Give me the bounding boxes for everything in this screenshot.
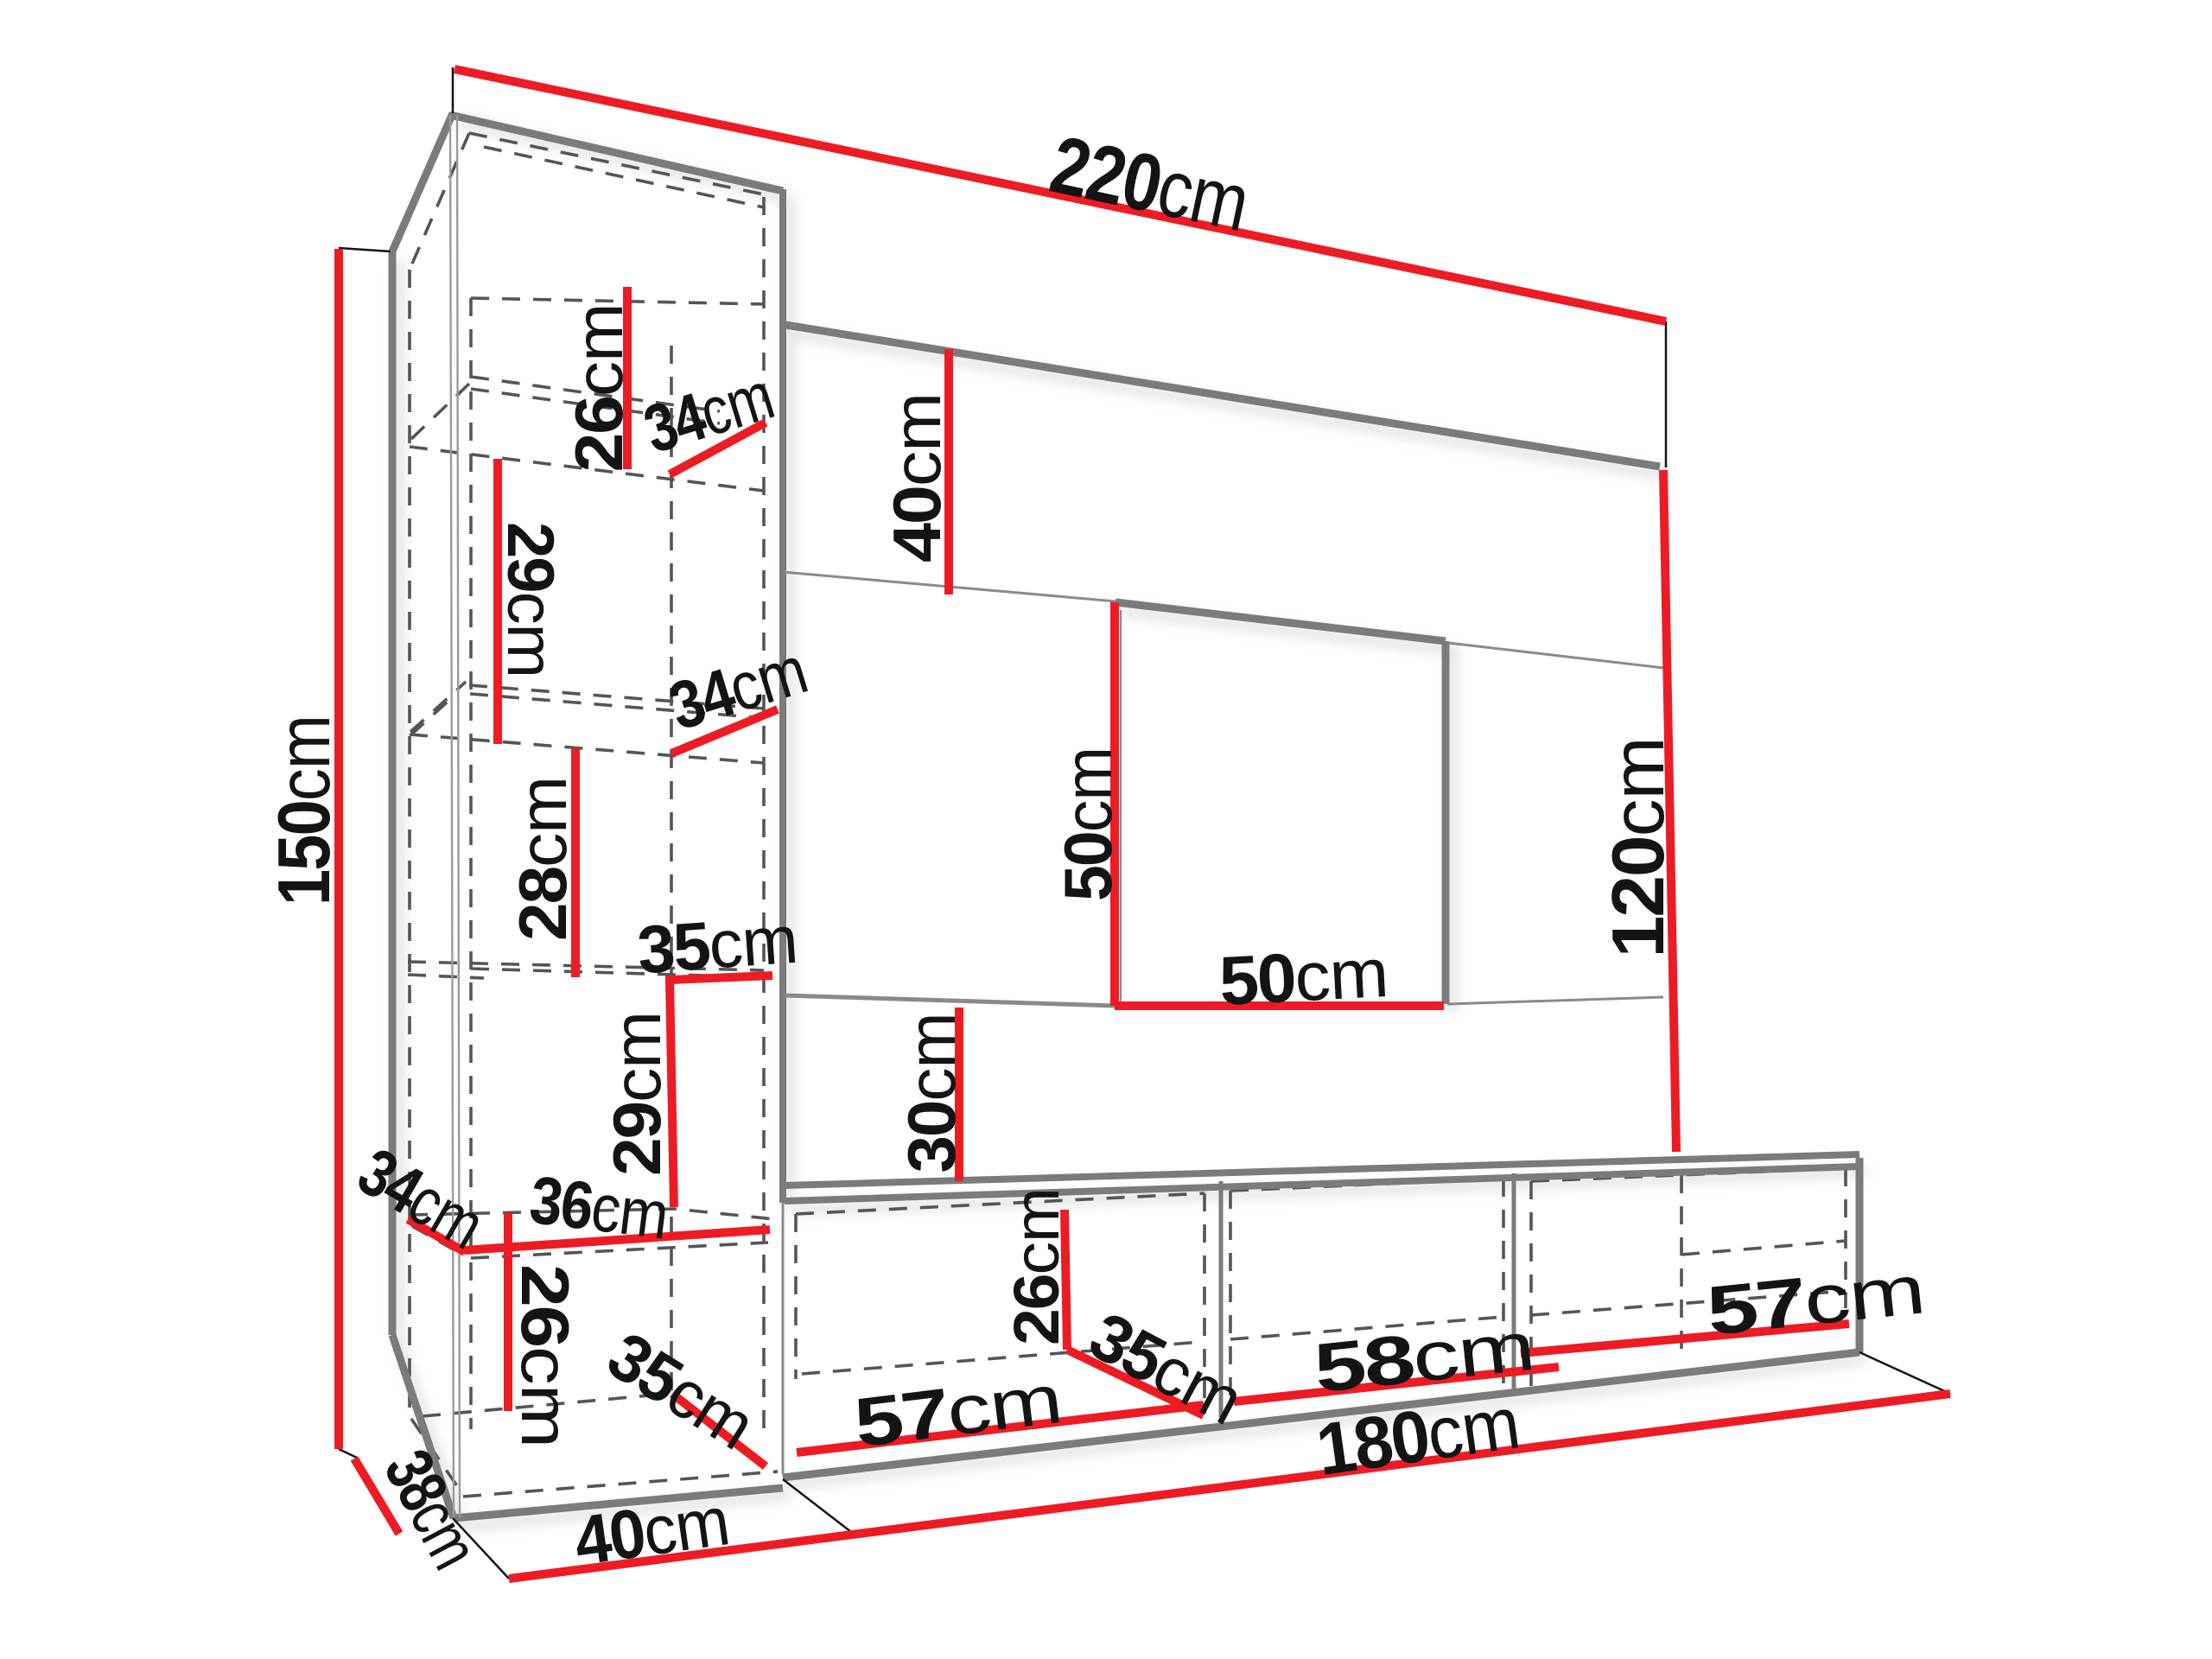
svg-text:30cm: 30cm — [893, 1014, 969, 1173]
svg-text:120cm: 120cm — [1598, 738, 1680, 958]
svg-text:26cm: 26cm — [507, 1264, 583, 1447]
svg-text:26cm: 26cm — [561, 304, 637, 473]
svg-text:26cm: 26cm — [1001, 1188, 1072, 1345]
svg-text:29cm: 29cm — [599, 1012, 675, 1176]
svg-text:50cm: 50cm — [1217, 934, 1389, 1020]
svg-text:150cm: 150cm — [264, 715, 346, 906]
svg-text:50cm: 50cm — [1050, 747, 1126, 901]
svg-text:40cm: 40cm — [879, 393, 955, 563]
svg-text:29cm: 29cm — [493, 522, 567, 677]
svg-text:35cm: 35cm — [635, 901, 800, 988]
svg-text:28cm: 28cm — [505, 777, 581, 941]
